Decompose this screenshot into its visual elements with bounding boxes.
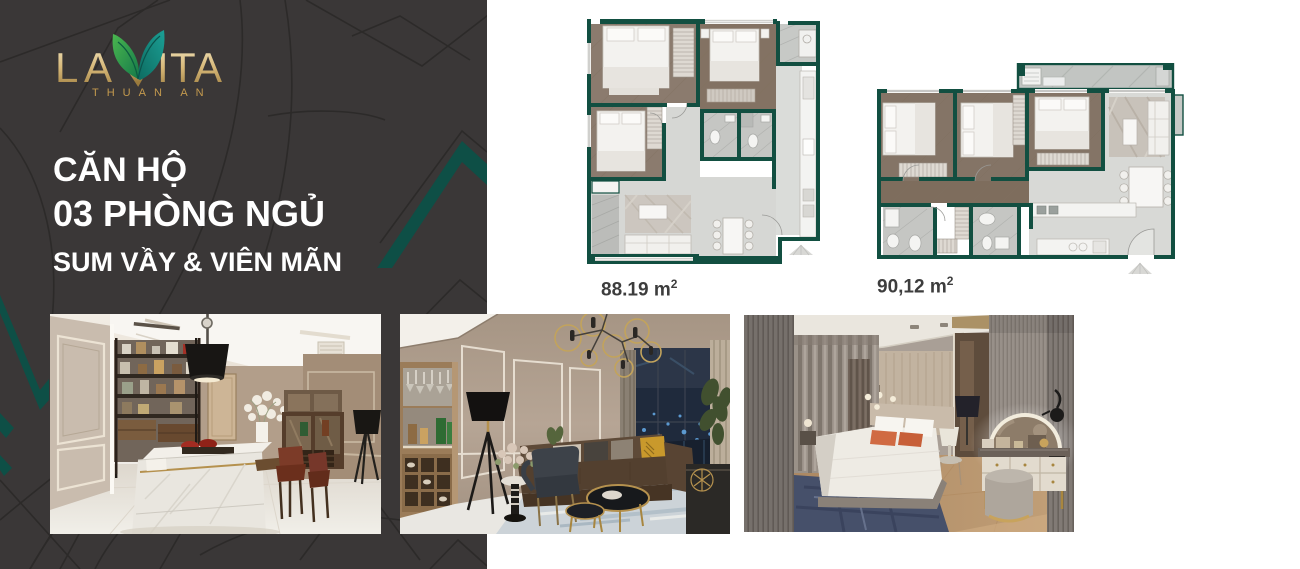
svg-text:ITA: ITA <box>157 44 227 91</box>
svg-text:THUAN AN: THUAN AN <box>92 87 212 99</box>
svg-text:LA: LA <box>55 44 117 91</box>
